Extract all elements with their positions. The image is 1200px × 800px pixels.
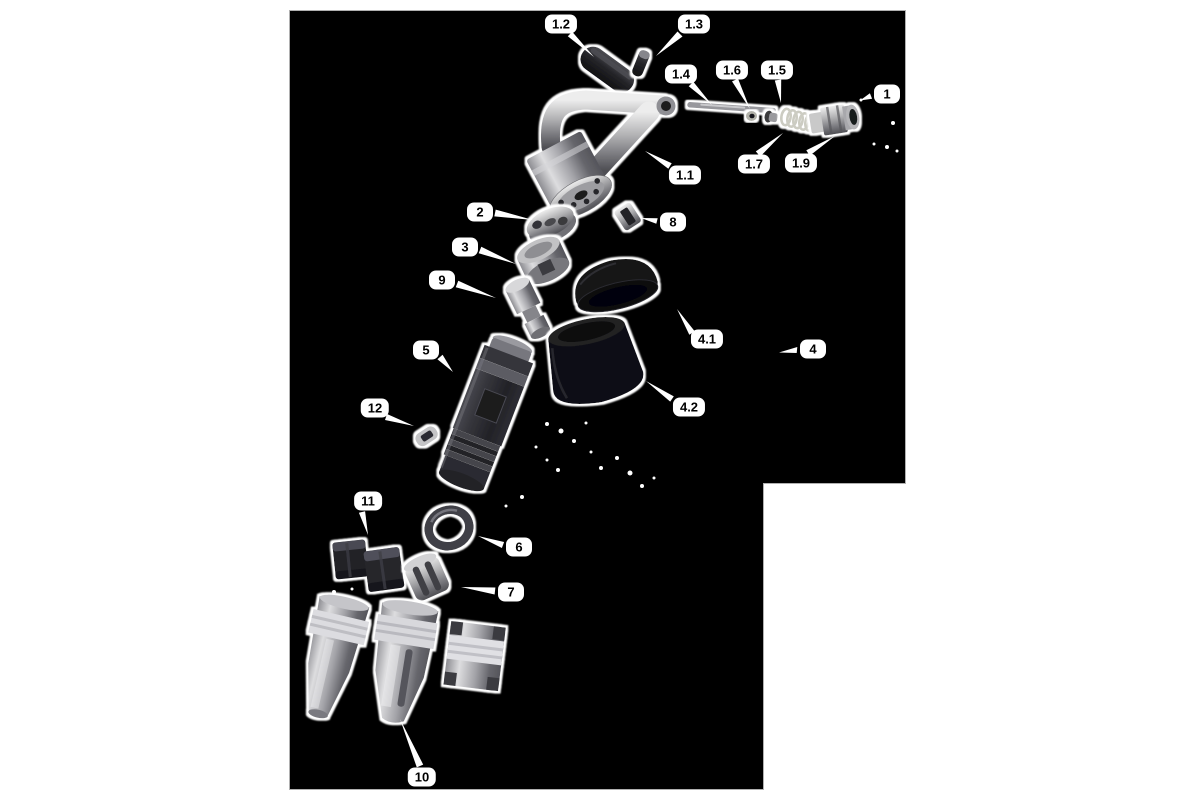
callout-1-5: 1.5	[761, 61, 793, 80]
callout-1-9: 1.9	[785, 154, 817, 173]
callout-1-2: 1.2	[545, 15, 577, 34]
callout-3: 3	[452, 238, 478, 257]
callout-4-1: 4.1	[691, 330, 723, 349]
diagram-canvas	[0, 0, 1200, 800]
callout-5: 5	[413, 341, 439, 360]
callout-7: 7	[498, 583, 524, 602]
part-retainer-nut	[443, 621, 505, 691]
callout-2: 2	[467, 203, 493, 222]
callout-12: 12	[361, 399, 389, 418]
callout-1-1: 1.1	[669, 166, 701, 185]
callout-1: 1	[874, 85, 900, 104]
callout-8: 8	[660, 213, 686, 232]
callout-1-3: 1.3	[678, 15, 710, 34]
callout-4: 4	[800, 340, 826, 359]
callout-11: 11	[354, 492, 382, 511]
callout-9: 9	[429, 271, 455, 290]
callout-10: 10	[408, 768, 436, 787]
callout-6: 6	[506, 538, 532, 557]
part-small-o-ring	[746, 111, 757, 121]
callout-1-7: 1.7	[738, 155, 770, 174]
exploded-parts-diagram: 1.2 1.3 1.4 1.6 1.5 1 1.7 1.9 1.1 2 8 3 …	[0, 0, 1200, 800]
callout-1-6: 1.6	[716, 61, 748, 80]
callout-1-4: 1.4	[665, 65, 697, 84]
callout-4-2: 4.2	[673, 398, 705, 417]
